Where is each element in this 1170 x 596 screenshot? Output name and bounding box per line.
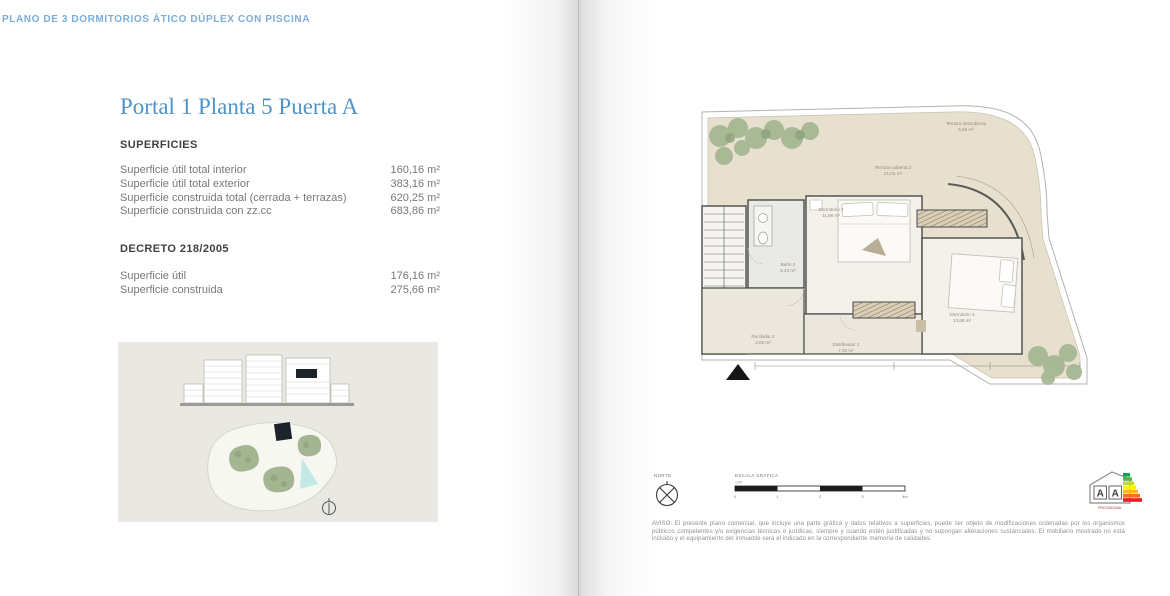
surface-value: 160,16 m² [390,164,440,178]
table-row: Superficie útil total interior 160,16 m² [120,164,440,178]
svg-text:0: 0 [734,495,736,499]
superficies-heading: SUPERFICIES [120,139,198,151]
svg-text:4,05 m²: 4,05 m² [755,340,771,345]
room-label-bano-2: Baño 2 [781,262,796,267]
surface-label: Superficie útil [120,270,186,284]
keyplan-graphic [118,342,438,522]
surface-label: Superficie construida con zz.cc [120,205,272,219]
surface-value: 275,66 m² [390,284,440,298]
brochure-spread: PLANO DE 3 DORMITORIOS ÁTICO DÚPLEX CON … [0,0,1170,596]
energy-letter: A [1097,489,1104,500]
table-row: Superficie útil total exterior 383,16 m² [120,178,440,192]
svg-text:1: 1 [776,495,778,499]
plan-legend: NORTE ESCALA GRÁFICA 1:50 0 1 2 3 4m [650,468,1145,516]
book-spine-line [578,0,579,596]
book-spine-shadow [505,0,655,596]
room-label-distribuidor-2: Distribuidor 2 [832,342,860,347]
scale-label: ESCALA GRÁFICA [735,473,778,478]
svg-text:5,66 m²: 5,66 m² [958,127,974,132]
surface-value: 620,25 m² [390,192,440,206]
surface-label: Superficie construida total (cerrada + t… [120,192,347,206]
energy-letter: A [1112,489,1119,500]
document-header: PLANO DE 3 DORMITORIOS ÁTICO DÚPLEX CON … [2,14,310,25]
north-label: NORTE [654,473,671,478]
table-row: Superficie construida total (cerrada + t… [120,192,440,206]
decreto-table: Superficie útil 176,16 m² Superficie con… [120,270,440,298]
location-keyplan [118,342,438,522]
bed-bedroom-2 [838,200,910,262]
surface-label: Superficie útil total interior [120,164,247,178]
superficies-table: Superficie útil total interior 160,16 m²… [120,164,440,219]
surface-value: 383,16 m² [390,178,440,192]
surface-value: 683,86 m² [390,205,440,219]
table-row: Superficie construida con zz.cc 683,86 m… [120,205,440,219]
svg-text:7,30 m²: 7,30 m² [838,348,854,353]
floor-plan: Terraza descubierta 5,66 m² Terraza cubi… [650,88,1145,398]
surface-value: 176,16 m² [390,270,440,284]
north-compass-icon [323,498,336,515]
svg-text:11,98 m²: 11,98 m² [822,213,840,218]
decreto-heading: DECRETO 218/2005 [120,243,229,255]
bed-bedroom-3 [948,254,1018,312]
unit-highlight-siteplan [274,422,292,441]
hall-recibidor [702,288,804,354]
svg-text:3: 3 [861,495,863,499]
energy-certificate-icon: A A PROVISIONAL [1090,472,1142,510]
site-plan-icon [208,422,337,515]
north-compass-icon [657,481,678,506]
page-title: Portal 1 Planta 5 Puerta A [120,94,358,120]
room-label-dormitorio-2: Dormitorio 2 [818,207,843,212]
unit-highlight-elevation [296,369,317,378]
legal-disclaimer: AVISO: El presente plano comercial, que … [652,521,1125,544]
energy-scale-bars [1123,473,1142,502]
room-label-recibidor-2: Recibidor 2 [751,334,775,339]
scale-ratio: 1:50 [735,481,742,485]
toilet-icon [759,232,768,244]
svg-text:21,04 m²: 21,04 m² [884,171,903,176]
pergola-louvres [917,210,987,227]
plan-north-triangle [726,364,750,380]
hall-distribuidor [804,314,922,354]
planter [916,320,926,332]
energy-caption: PROVISIONAL [1098,506,1122,510]
wardrobe [853,302,915,318]
svg-text:13,68 m²: 13,68 m² [953,318,972,323]
graphic-scale: ESCALA GRÁFICA 1:50 0 1 2 3 4m [734,473,908,499]
svg-text:4m: 4m [902,495,907,499]
svg-text:2: 2 [819,495,821,499]
room-label-terraza-descubierta: Terraza descubierta [946,121,987,126]
building-elevation-icon [180,355,354,405]
sink-icon [759,214,768,223]
room-label-dormitorio-3: Dormitorio 3 [949,312,974,317]
room-label-terraza-cubierta: Terraza cubierta 2 [875,165,912,170]
table-row: Superficie construida 275,66 m² [120,284,440,298]
svg-text:5,24 m²: 5,24 m² [780,268,796,273]
table-row: Superficie útil 176,16 m² [120,270,440,284]
surface-label: Superficie útil total exterior [120,178,250,192]
surface-label: Superficie construida [120,284,223,298]
